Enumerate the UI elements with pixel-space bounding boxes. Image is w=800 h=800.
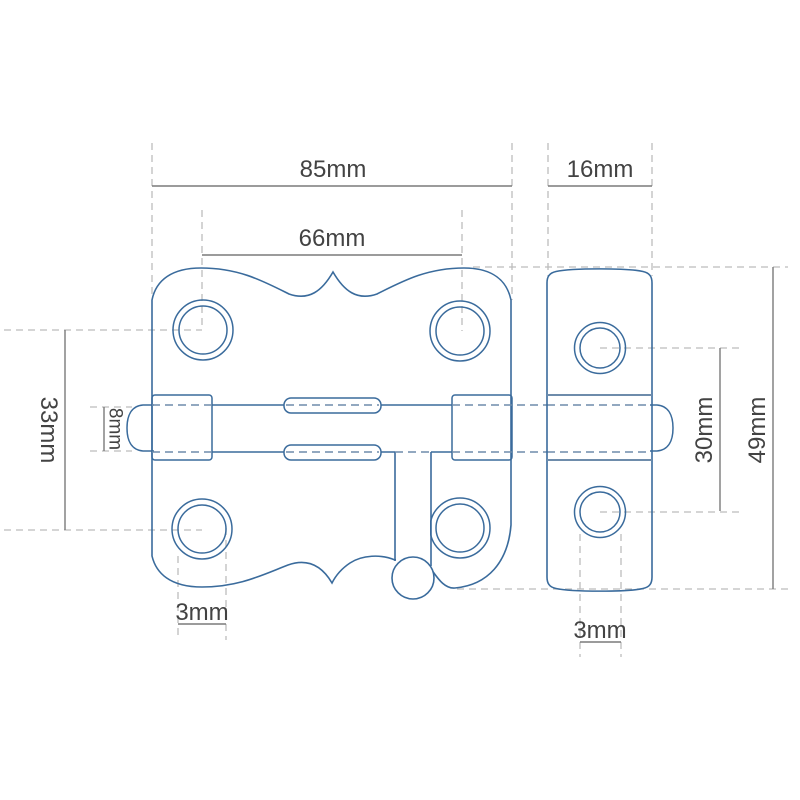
knob-stem-mask	[396, 453, 430, 565]
knob-ball	[392, 557, 434, 599]
bolt-plate-outline	[152, 268, 511, 588]
dim-label-keeper-hole-spacing: 30mm	[693, 397, 717, 464]
screw-hole-bottom-left-inner	[178, 505, 226, 553]
screw-hole-top-right-outer	[430, 301, 490, 361]
dim-label-plate-hole-offset: 3mm	[175, 601, 228, 625]
screw-hole-bottom-right-inner	[436, 504, 484, 552]
barrel-bolt-line-drawing	[0, 0, 800, 800]
keeper-screw-holes	[575, 323, 626, 538]
bolt-rod-hidden-edges	[152, 405, 650, 452]
dim-label-overall-plate-width: 85mm	[300, 158, 367, 182]
dim-label-keeper-hole-offset: 3mm	[573, 619, 626, 643]
dim-label-hole-spacing-vertical: 33mm	[36, 397, 60, 464]
bolt-left-end-cap	[127, 405, 154, 451]
bolt-right-tip	[650, 405, 673, 451]
bolt-knob	[392, 452, 434, 599]
dim-label-keeper-plate-width: 16mm	[567, 158, 634, 182]
technical-drawing-canvas: 85mm 16mm 66mm 33mm 8mm 30mm 49mm 3mm 3m…	[0, 0, 800, 800]
dim-label-keeper-plate-height: 49mm	[746, 397, 770, 464]
screw-hole-bottom-left-outer	[172, 499, 232, 559]
dim-label-hole-spacing-horizontal: 66mm	[299, 227, 366, 251]
bolt-plate-screw-holes	[172, 300, 490, 559]
keeper-plate-outline	[547, 269, 652, 591]
screw-hole-top-left-outer	[173, 300, 233, 360]
screw-hole-top-right-inner	[436, 307, 484, 355]
dim-label-bolt-rod-diameter: 8mm	[106, 408, 125, 450]
bolt-rod-visible-edges	[127, 405, 673, 452]
screw-hole-bottom-right-outer	[430, 498, 490, 558]
